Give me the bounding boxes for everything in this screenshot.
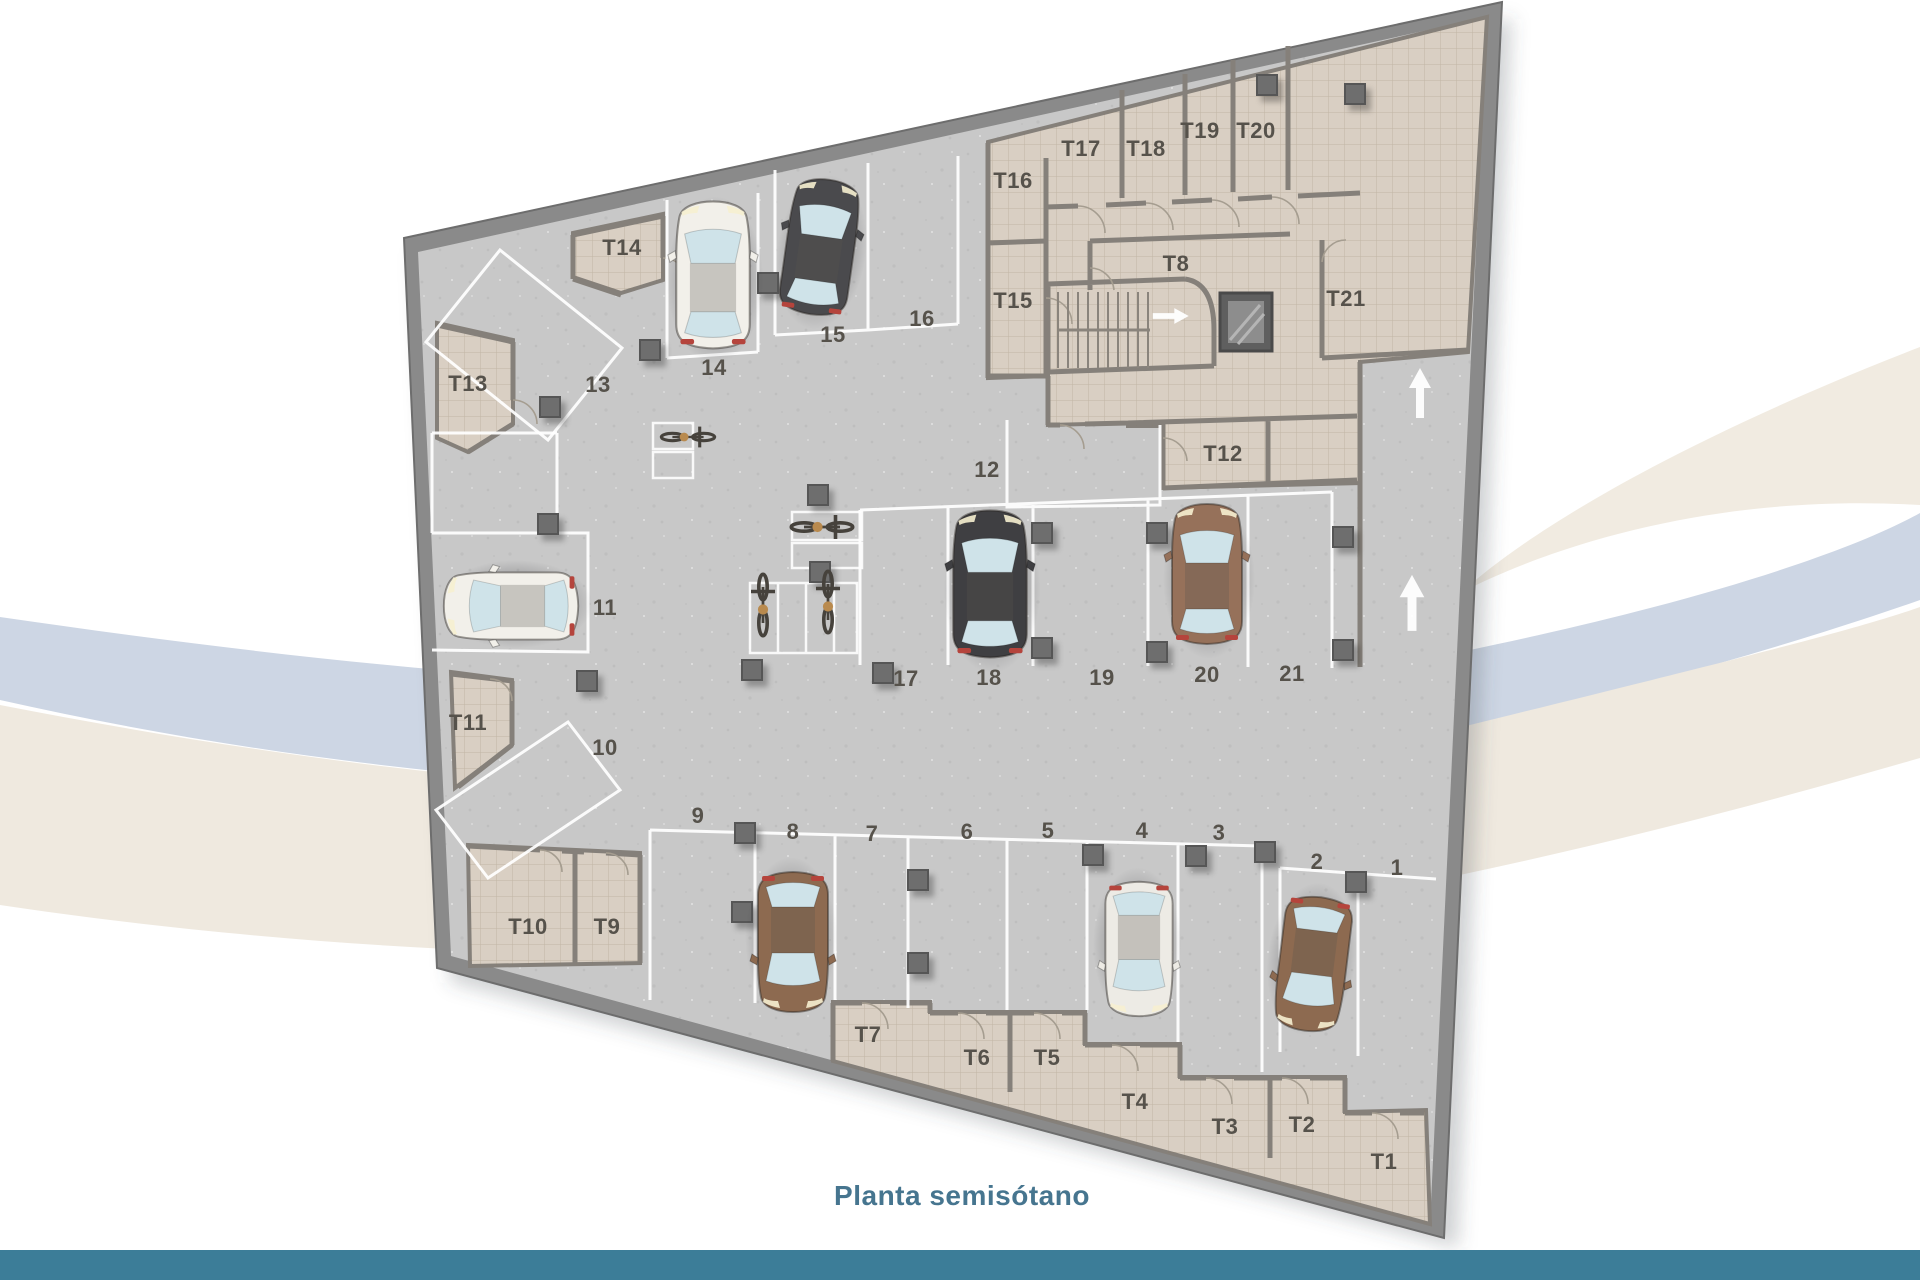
parking-label-6: 6 (961, 819, 974, 844)
parking-label-21: 21 (1279, 661, 1304, 686)
parking-label-19: 19 (1089, 665, 1114, 690)
footer-bar (0, 1250, 1920, 1280)
storage-label-T12: T12 (1203, 441, 1242, 466)
car-black-space-18 (944, 505, 1041, 673)
storage-label-T21: T21 (1326, 286, 1365, 311)
storage-label-T20: T20 (1236, 118, 1275, 143)
parking-label-5: 5 (1042, 818, 1055, 843)
parking-label-2: 2 (1311, 849, 1324, 874)
storage-label-T2: T2 (1289, 1112, 1316, 1137)
car-white-space-11 (439, 560, 593, 648)
plan-title: Planta semisótano (834, 1180, 1090, 1211)
storage-label-T19: T19 (1180, 118, 1219, 143)
storage-label-T16: T16 (993, 168, 1032, 193)
storage-label-T5: T5 (1034, 1045, 1061, 1070)
storage-label-T15: T15 (993, 288, 1032, 313)
car-white-space-4 (1093, 867, 1181, 1021)
storage-label-T10: T10 (508, 914, 547, 939)
storage-label-T11: T11 (449, 710, 487, 735)
parking-label-15: 15 (820, 322, 845, 347)
parking-label-16: 16 (909, 306, 934, 331)
parking-label-13: 13 (585, 372, 610, 397)
storage-label-T7: T7 (855, 1022, 882, 1047)
parking-label-12: 12 (974, 457, 999, 482)
storage-label-T3: T3 (1212, 1114, 1239, 1139)
parking-label-1: 1 (1391, 855, 1404, 880)
parking-label-7: 7 (866, 821, 879, 846)
storage-label-T13: T13 (448, 371, 487, 396)
storage-label-T6: T6 (964, 1045, 991, 1070)
floor-plan-canvas: 1 2 3 4 5 6 7 8 9 10 11 12 13 14 15 16 1… (0, 0, 1920, 1280)
storage-label-T1: T1 (1371, 1149, 1398, 1174)
parking-label-4: 4 (1136, 818, 1149, 843)
parking-label-9: 9 (692, 803, 705, 828)
parking-label-20: 20 (1194, 662, 1219, 687)
car-white-space-14 (667, 196, 764, 364)
parking-label-18: 18 (976, 665, 1001, 690)
storage-label-T17: T17 (1061, 136, 1100, 161)
storage-label-T8: T8 (1163, 251, 1190, 276)
car-brown-space-20 (1163, 499, 1255, 659)
elevator (1220, 293, 1272, 351)
parking-label-17: 17 (893, 666, 918, 691)
storage-label-T9: T9 (594, 914, 621, 939)
car-brown-space-8 (745, 857, 837, 1017)
parking-label-8: 8 (787, 819, 800, 844)
storage-label-T14: T14 (602, 235, 642, 260)
parking-label-11: 11 (593, 595, 617, 620)
parking-label-14: 14 (701, 355, 727, 380)
storage-label-T18: T18 (1126, 136, 1165, 161)
parking-label-3: 3 (1213, 820, 1226, 845)
storage-label-T4: T4 (1122, 1089, 1149, 1114)
parking-label-10: 10 (592, 735, 617, 760)
